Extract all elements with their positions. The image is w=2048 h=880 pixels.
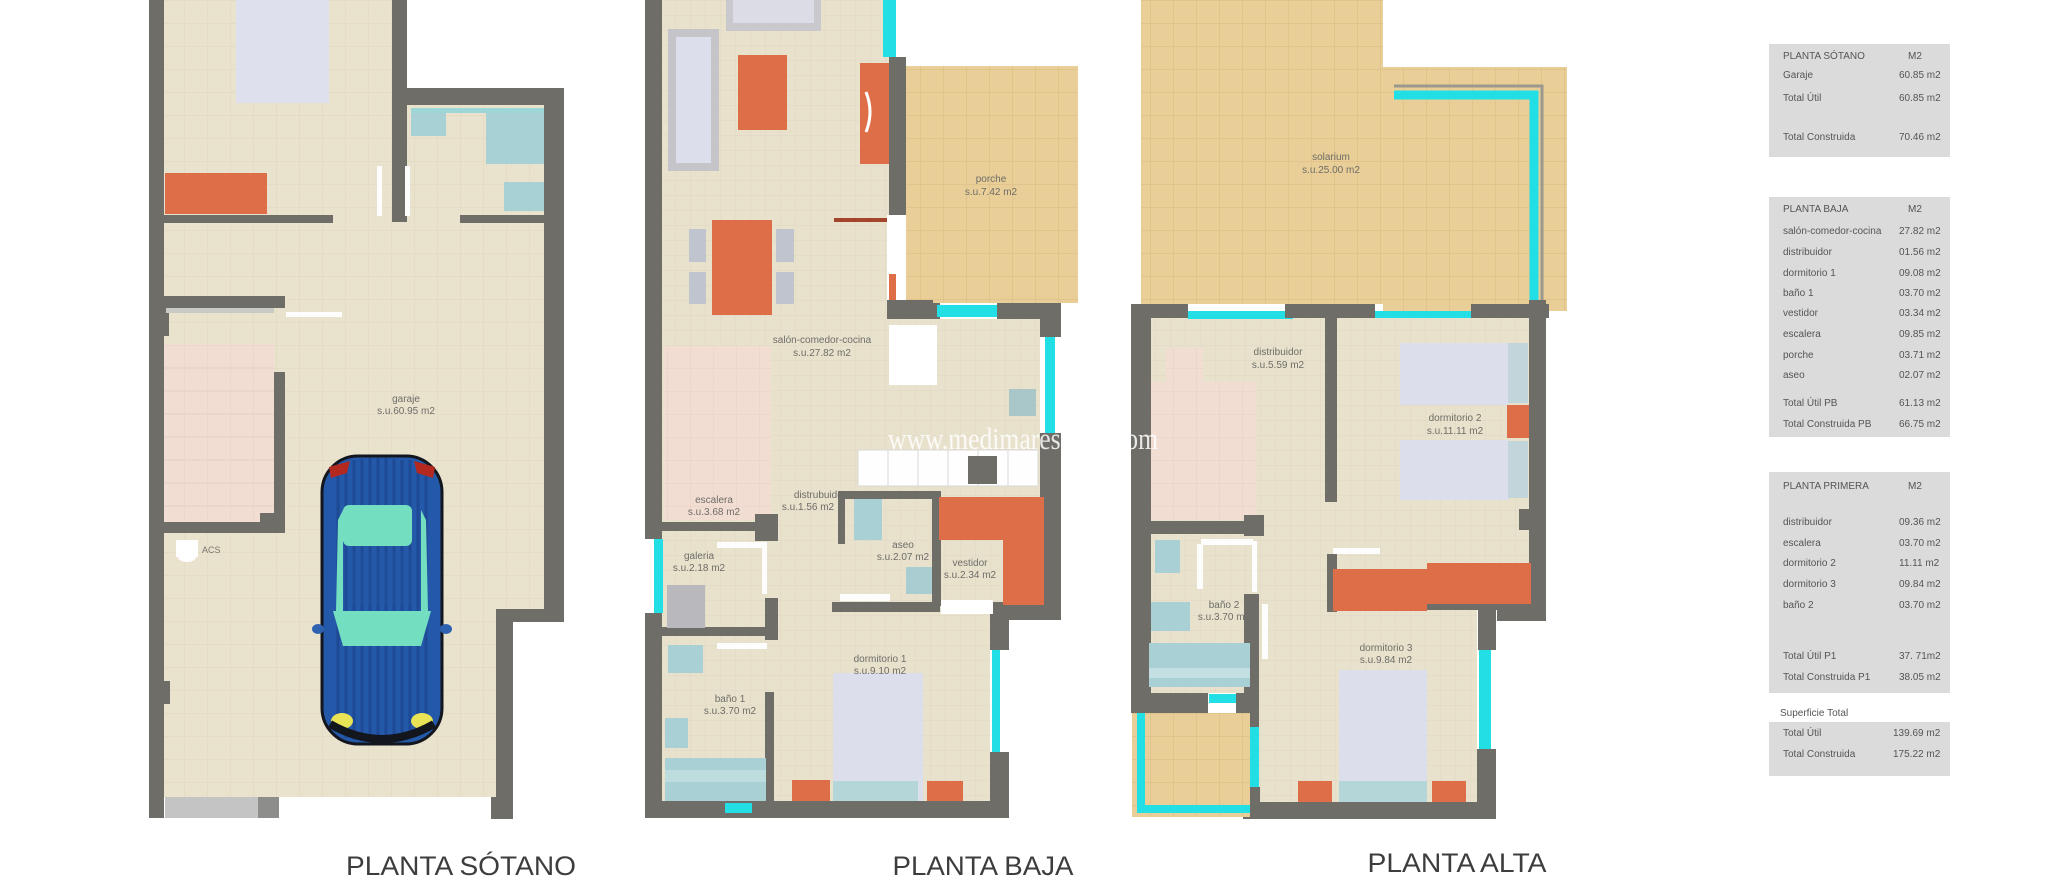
svg-text:s.u.11.11 m2: s.u.11.11 m2 xyxy=(1427,426,1484,437)
svg-text:escalera: escalera xyxy=(1783,538,1821,549)
svg-text:s.u.27.82 m2: s.u.27.82 m2 xyxy=(793,348,851,359)
svg-text:Total Útil PB: Total Útil PB xyxy=(1783,396,1838,409)
svg-text:M2: M2 xyxy=(1908,51,1922,62)
svg-text:Total Construida P1: Total Construida P1 xyxy=(1783,672,1871,683)
svg-text:70.46 m2: 70.46 m2 xyxy=(1899,132,1941,143)
svg-text:PLANTA BAJA: PLANTA BAJA xyxy=(1783,204,1849,215)
svg-text:M2: M2 xyxy=(1908,204,1922,215)
svg-text:dormitorio 3: dormitorio 3 xyxy=(1783,579,1836,590)
svg-text:porche: porche xyxy=(1783,350,1814,361)
svg-text:PLANTA PRIMERA: PLANTA PRIMERA xyxy=(1783,481,1869,492)
svg-text:garaje: garaje xyxy=(392,394,420,405)
svg-text:37. 71m2: 37. 71m2 xyxy=(1899,651,1941,662)
svg-text:s.u.2.34 m2: s.u.2.34 m2 xyxy=(944,570,997,581)
svg-text:dormitorio 1: dormitorio 1 xyxy=(1783,268,1836,279)
svg-text:175.22 m2: 175.22 m2 xyxy=(1893,749,1941,760)
svg-text:Total Útil: Total Útil xyxy=(1783,726,1821,739)
svg-text:escalera: escalera xyxy=(695,495,733,506)
svg-text:Total Construida: Total Construida xyxy=(1783,749,1856,760)
svg-text:ACS: ACS xyxy=(202,545,221,555)
svg-text:PLANTA ALTA: PLANTA ALTA xyxy=(1368,848,1547,878)
svg-text:38.05 m2: 38.05 m2 xyxy=(1899,672,1941,683)
svg-text:salón-comedor-cocina: salón-comedor-cocina xyxy=(773,335,872,346)
svg-text:09.85 m2: 09.85 m2 xyxy=(1899,329,1941,340)
svg-text:139.69 m2: 139.69 m2 xyxy=(1893,728,1941,739)
svg-text:s.u.60.95 m2: s.u.60.95 m2 xyxy=(377,406,435,417)
svg-text:baño 1: baño 1 xyxy=(715,694,746,705)
svg-text:baño 2: baño 2 xyxy=(1209,600,1240,611)
svg-text:61.13 m2: 61.13 m2 xyxy=(1899,398,1941,409)
svg-text:www.medimarestates.com: www.medimarestates.com xyxy=(888,421,1158,456)
svg-text:60.85 m2: 60.85 m2 xyxy=(1899,93,1941,104)
svg-text:distribuidor: distribuidor xyxy=(1254,347,1304,358)
svg-text:baño 2: baño 2 xyxy=(1783,600,1814,611)
svg-text:03.70 m2: 03.70 m2 xyxy=(1899,538,1941,549)
svg-text:03.70 m2: 03.70 m2 xyxy=(1899,600,1941,611)
svg-text:dormitorio 2: dormitorio 2 xyxy=(1783,558,1836,569)
svg-text:Total Útil: Total Útil xyxy=(1783,91,1821,104)
svg-text:s.u.9.10 m2: s.u.9.10 m2 xyxy=(854,666,907,677)
svg-text:Total Construida: Total Construida xyxy=(1783,132,1856,143)
svg-text:solarium: solarium xyxy=(1312,152,1350,163)
svg-text:s.u.1.56 m2: s.u.1.56 m2 xyxy=(782,502,835,513)
svg-text:s.u.2.07 m2: s.u.2.07 m2 xyxy=(877,552,930,563)
svg-text:PLANTA BAJA: PLANTA BAJA xyxy=(893,851,1074,880)
svg-text:vestidor: vestidor xyxy=(952,558,988,569)
svg-text:vestidor: vestidor xyxy=(1783,308,1819,319)
svg-text:s.u.7.42 m2: s.u.7.42 m2 xyxy=(965,187,1018,198)
svg-text:09.08 m2: 09.08 m2 xyxy=(1899,268,1941,279)
svg-text:03.34 m2: 03.34 m2 xyxy=(1899,308,1941,319)
svg-text:porche: porche xyxy=(976,174,1007,185)
svg-text:dormitorio 1: dormitorio 1 xyxy=(854,654,907,665)
svg-text:distribuidor: distribuidor xyxy=(1783,517,1833,528)
svg-text:s.u.3.68 m2: s.u.3.68 m2 xyxy=(688,507,741,518)
svg-text:PLANTA SÓTANO: PLANTA SÓTANO xyxy=(346,850,576,880)
svg-text:aseo: aseo xyxy=(1783,370,1805,381)
svg-text:11.11 m2: 11.11 m2 xyxy=(1899,558,1940,569)
svg-text:03.70 m2: 03.70 m2 xyxy=(1899,288,1941,299)
svg-text:s.u.25.00 m2: s.u.25.00 m2 xyxy=(1302,165,1360,176)
svg-text:s.u.9.84 m2: s.u.9.84 m2 xyxy=(1360,655,1413,666)
svg-text:66.75 m2: 66.75 m2 xyxy=(1899,419,1941,430)
svg-text:distrubuidor: distrubuidor xyxy=(794,490,847,501)
svg-text:Superficie Total: Superficie Total xyxy=(1780,708,1848,719)
svg-text:s.u.5.59 m2: s.u.5.59 m2 xyxy=(1252,360,1305,371)
svg-text:Total Útil P1: Total Útil P1 xyxy=(1783,649,1837,662)
svg-text:02.07 m2: 02.07 m2 xyxy=(1899,370,1941,381)
svg-text:Garaje: Garaje xyxy=(1783,70,1813,81)
svg-text:60.85 m2: 60.85 m2 xyxy=(1899,70,1941,81)
svg-text:27.82 m2: 27.82 m2 xyxy=(1899,226,1941,237)
svg-text:distribuidor: distribuidor xyxy=(1783,247,1833,258)
svg-text:Total Construida PB: Total Construida PB xyxy=(1783,419,1872,430)
svg-text:09.84 m2: 09.84 m2 xyxy=(1899,579,1941,590)
svg-text:01.56 m2: 01.56 m2 xyxy=(1899,247,1941,258)
svg-text:09.36 m2: 09.36 m2 xyxy=(1899,517,1941,528)
svg-text:escalera: escalera xyxy=(1783,329,1821,340)
svg-text:s.u.3.70 m2: s.u.3.70 m2 xyxy=(704,706,757,717)
svg-text:galeria: galeria xyxy=(684,551,714,562)
svg-text:salón-comedor-cocina: salón-comedor-cocina xyxy=(1783,226,1882,237)
svg-text:dormitorio 3: dormitorio 3 xyxy=(1360,643,1413,654)
svg-text:M2: M2 xyxy=(1908,481,1922,492)
svg-text:aseo: aseo xyxy=(892,540,914,551)
svg-text:dormitorio 2: dormitorio 2 xyxy=(1429,413,1482,424)
svg-text:03.71 m2: 03.71 m2 xyxy=(1899,350,1941,361)
svg-text:s.u.2.18 m2: s.u.2.18 m2 xyxy=(673,563,726,574)
svg-text:PLANTA SÓTANO: PLANTA SÓTANO xyxy=(1783,49,1865,62)
svg-text:baño 1: baño 1 xyxy=(1783,288,1814,299)
svg-text:s.u.3.70 m2: s.u.3.70 m2 xyxy=(1198,612,1251,623)
